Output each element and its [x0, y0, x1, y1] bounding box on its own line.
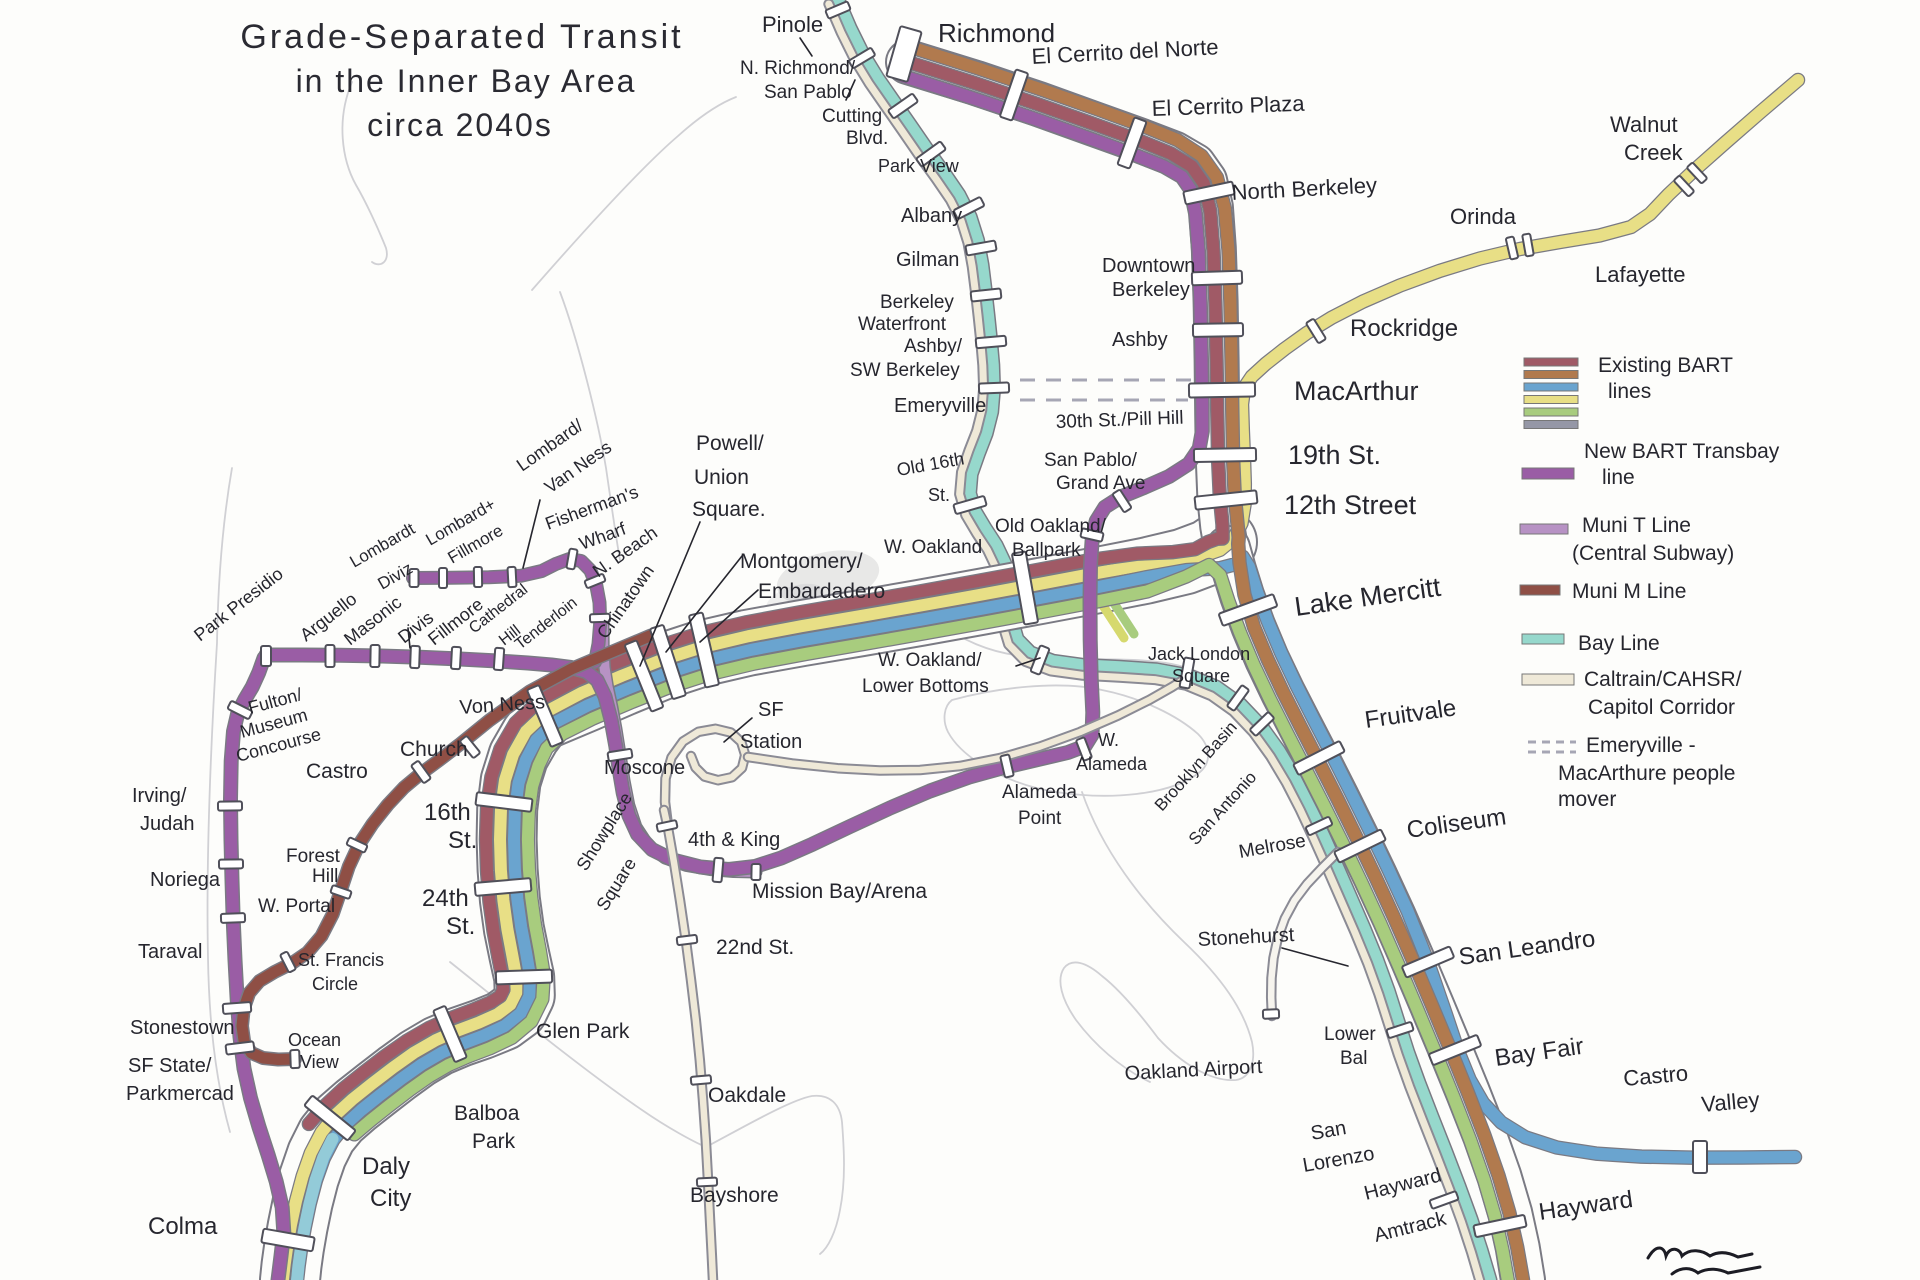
svg-text:Lower: Lower	[1324, 1024, 1376, 1045]
svg-text:Embardadero: Embardadero	[758, 580, 885, 603]
svg-text:Ocean: Ocean	[288, 1030, 341, 1050]
svg-text:Lower Bottoms: Lower Bottoms	[862, 676, 989, 697]
svg-text:Noriega: Noriega	[150, 869, 221, 891]
svg-text:MacArthur: MacArthur	[1294, 376, 1419, 406]
svg-text:Pinole: Pinole	[762, 12, 823, 37]
svg-text:Station: Station	[740, 731, 802, 753]
svg-text:W. Oakland/: W. Oakland/	[878, 650, 982, 671]
svg-text:22nd St.: 22nd St.	[716, 936, 794, 959]
svg-text:Cutting: Cutting	[822, 106, 882, 127]
svg-text:lines: lines	[1608, 380, 1651, 403]
svg-text:Walnut: Walnut	[1610, 112, 1678, 137]
svg-text:Capitol Corridor: Capitol Corridor	[1588, 696, 1735, 719]
svg-text:Circle: Circle	[312, 974, 358, 994]
svg-text:Downtown: Downtown	[1102, 255, 1195, 277]
svg-text:Balboa: Balboa	[454, 1102, 520, 1125]
svg-text:New BART Transbay: New BART Transbay	[1584, 440, 1780, 463]
svg-text:Stonestown: Stonestown	[130, 1017, 235, 1039]
svg-text:Creek: Creek	[1624, 140, 1684, 165]
svg-text:30th St./Pill Hill: 30th St./Pill Hill	[1055, 408, 1183, 433]
svg-text:Emeryville: Emeryville	[894, 395, 986, 417]
svg-text:N. Richmond/: N. Richmond/	[740, 58, 856, 79]
svg-text:City: City	[370, 1185, 411, 1212]
svg-text:SF: SF	[758, 699, 784, 721]
svg-text:Bayshore: Bayshore	[690, 1184, 779, 1207]
svg-text:Mission Bay/Arena: Mission Bay/Arena	[752, 880, 927, 903]
svg-text:Union: Union	[694, 466, 749, 489]
svg-text:Orinda: Orinda	[1450, 204, 1517, 229]
svg-text:Church: Church	[400, 738, 468, 761]
svg-text:Ashby: Ashby	[1112, 329, 1168, 351]
svg-text:St. Francis: St. Francis	[298, 950, 384, 970]
svg-text:4th & King: 4th & King	[688, 829, 780, 851]
svg-text:Bal: Bal	[1340, 1048, 1367, 1069]
svg-text:Ashby/: Ashby/	[904, 336, 963, 357]
svg-text:Taraval: Taraval	[138, 941, 202, 963]
svg-text:Ballpark: Ballpark	[1012, 540, 1081, 561]
svg-text:Caltrain/CAHSR/: Caltrain/CAHSR/	[1584, 668, 1742, 691]
svg-text:Point: Point	[1018, 808, 1062, 829]
svg-text:Grade-Separated Transit: Grade-Separated Transit	[240, 18, 683, 56]
svg-text:Oakdale: Oakdale	[708, 1084, 786, 1107]
svg-text:Montgomery/: Montgomery/	[740, 550, 863, 573]
svg-text:W.: W.	[1098, 730, 1119, 750]
svg-text:San Pablo/: San Pablo/	[1044, 450, 1138, 471]
svg-text:Waterfront: Waterfront	[858, 314, 947, 335]
svg-text:W. Oakland: W. Oakland	[884, 537, 982, 558]
svg-text:St.: St.	[446, 913, 475, 940]
svg-text:El Cerrito Plaza: El Cerrito Plaza	[1151, 91, 1305, 121]
svg-text:16th: 16th	[424, 799, 471, 826]
svg-text:Muni M Line: Muni M Line	[1572, 580, 1686, 603]
svg-text:Emeryville -: Emeryville -	[1586, 734, 1696, 757]
svg-text:Alameda: Alameda	[1076, 754, 1148, 774]
svg-text:San Pablo: San Pablo	[764, 82, 852, 103]
svg-text:Glen Park: Glen Park	[536, 1020, 630, 1043]
svg-text:SW Berkeley: SW Berkeley	[850, 360, 960, 381]
svg-text:19th St.: 19th St.	[1288, 440, 1381, 470]
svg-text:circa 2040s: circa 2040s	[367, 107, 553, 143]
svg-text:Berkeley: Berkeley	[880, 292, 954, 313]
svg-text:Powell/: Powell/	[696, 432, 764, 455]
svg-text:Jack London: Jack London	[1148, 644, 1250, 664]
svg-text:Bay Line: Bay Line	[1578, 632, 1660, 655]
svg-text:Judah: Judah	[140, 813, 195, 835]
svg-text:Albany: Albany	[901, 205, 962, 227]
svg-text:Irving/: Irving/	[132, 785, 187, 807]
svg-text:Valley: Valley	[1700, 1087, 1760, 1117]
svg-text:Lafayette: Lafayette	[1595, 262, 1686, 287]
svg-text:Colma: Colma	[148, 1213, 218, 1240]
svg-text:Parkmercad: Parkmercad	[126, 1083, 234, 1105]
svg-text:Square: Square	[1172, 666, 1230, 686]
svg-text:St.: St.	[928, 485, 950, 505]
svg-text:Park: Park	[472, 1130, 516, 1153]
svg-text:Blvd.: Blvd.	[846, 128, 888, 149]
svg-text:24th: 24th	[422, 885, 469, 912]
svg-text:Old Oakland/: Old Oakland/	[995, 516, 1107, 537]
svg-text:Berkeley: Berkeley	[1112, 279, 1190, 301]
svg-text:Castro: Castro	[306, 760, 368, 783]
svg-text:Moscone: Moscone	[604, 757, 685, 779]
svg-text:Existing BART: Existing BART	[1598, 354, 1733, 377]
svg-text:12th Street: 12th Street	[1284, 490, 1417, 520]
svg-text:W. Portal: W. Portal	[258, 896, 335, 917]
svg-text:Hill: Hill	[312, 866, 338, 887]
svg-text:View: View	[300, 1052, 340, 1072]
svg-text:Alameda: Alameda	[1002, 782, 1077, 803]
svg-text:Park View: Park View	[878, 156, 960, 176]
svg-text:Square.: Square.	[692, 498, 766, 521]
svg-text:(Central Subway): (Central Subway)	[1572, 542, 1734, 565]
svg-text:Forest: Forest	[286, 846, 341, 867]
svg-text:line: line	[1602, 466, 1635, 489]
svg-text:MacArthure people: MacArthure people	[1558, 762, 1735, 785]
svg-text:in the Inner Bay Area: in the Inner Bay Area	[296, 63, 637, 99]
svg-text:St.: St.	[448, 827, 477, 854]
svg-text:mover: mover	[1558, 788, 1616, 811]
svg-text:Grand Ave: Grand Ave	[1056, 473, 1145, 494]
svg-text:Daly: Daly	[362, 1153, 410, 1180]
svg-text:SF State/: SF State/	[128, 1055, 212, 1077]
svg-text:Rockridge: Rockridge	[1350, 315, 1458, 342]
svg-text:Muni T Line: Muni T Line	[1582, 514, 1691, 537]
svg-text:Gilman: Gilman	[896, 249, 959, 271]
